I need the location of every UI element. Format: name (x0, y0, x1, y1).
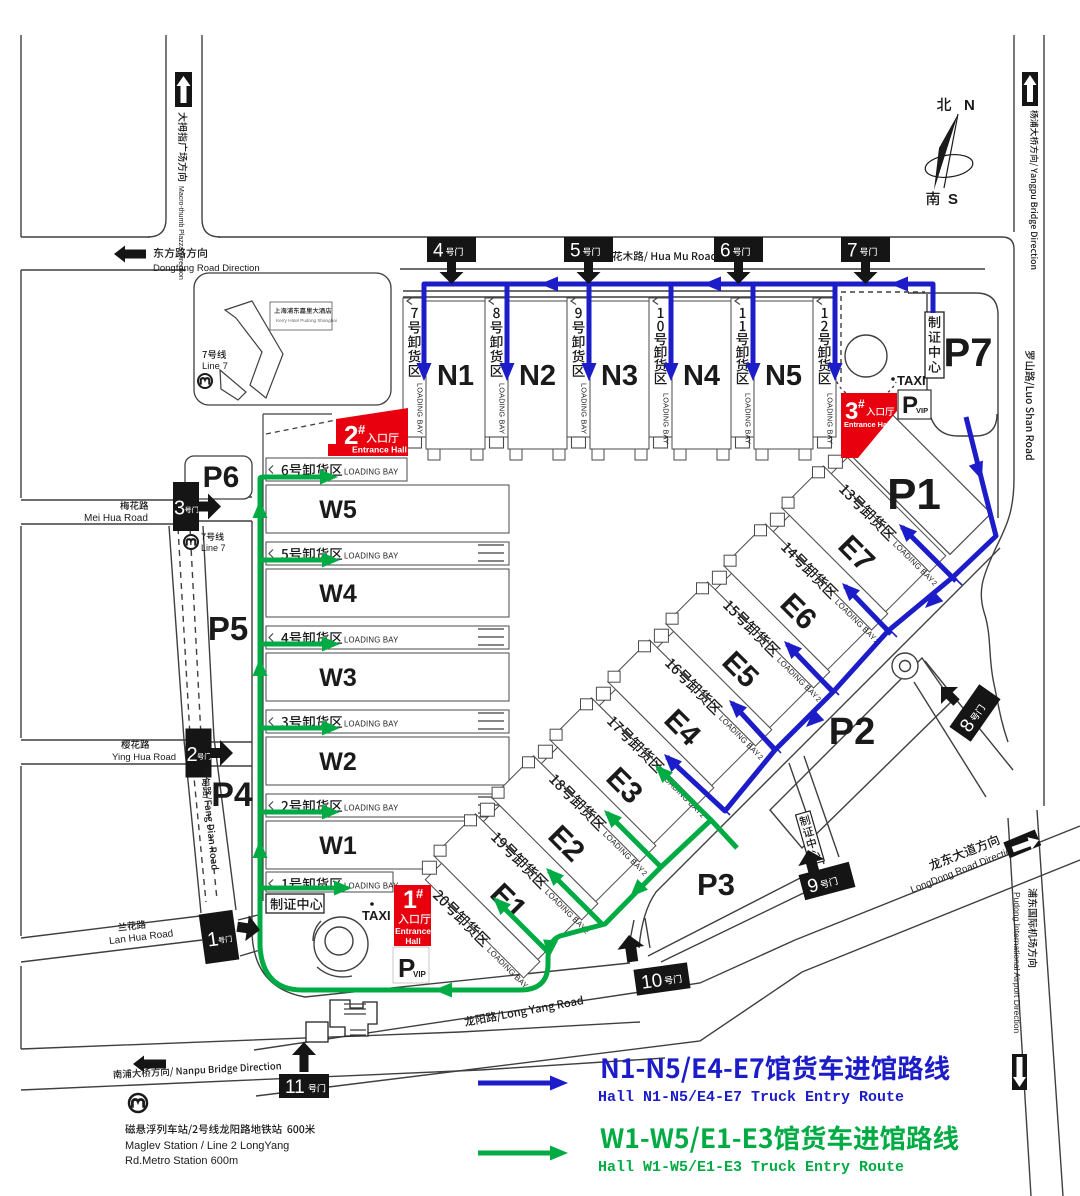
svg-text:W5: W5 (319, 496, 357, 524)
svg-text:P3: P3 (697, 867, 735, 902)
svg-text:10: 10 (640, 970, 664, 994)
svg-text:N2: N2 (519, 360, 556, 392)
svg-text:Entrance: Entrance (395, 926, 431, 936)
svg-text:P2: P2 (829, 711, 875, 753)
svg-text:W4: W4 (319, 580, 357, 608)
svg-text:LOADING BAY: LOADING BAY (416, 383, 425, 434)
svg-text:LOADING BAY: LOADING BAY (662, 393, 671, 444)
svg-text:4: 4 (433, 241, 444, 262)
svg-text:LOADING BAY: LOADING BAY (826, 393, 835, 444)
svg-text:Hall W1-W5/E1-E3 Truck Entry R: Hall W1-W5/E1-E3 Truck Entry Route (598, 1159, 904, 1176)
svg-text:N3: N3 (601, 360, 638, 392)
svg-text:LOADING BAY: LOADING BAY (344, 804, 399, 813)
svg-text:P4: P4 (211, 776, 253, 814)
svg-text:N4: N4 (683, 360, 720, 392)
svg-text:TAXI: TAXI (362, 908, 391, 923)
svg-text:LOADING BAY: LOADING BAY (344, 468, 399, 477)
svg-text:LOADING BAY: LOADING BAY (344, 552, 399, 561)
svg-text:6: 6 (720, 241, 731, 262)
svg-text:W1: W1 (319, 832, 357, 860)
svg-text:LOADING BAY: LOADING BAY (344, 882, 399, 891)
svg-text:S: S (948, 191, 958, 208)
svg-text:LOADING BAY: LOADING BAY (344, 636, 399, 645)
svg-text:11: 11 (285, 1077, 305, 1098)
svg-text:Rd.Metro Station 600m: Rd.Metro Station 600m (125, 1155, 238, 1167)
svg-text:Hall: Hall (405, 936, 420, 946)
svg-text:Pudong International Airport D: Pudong International Airport Direction (1012, 892, 1022, 1034)
svg-text:Dongfang Road Direction: Dongfang Road Direction (153, 263, 260, 274)
svg-text:5: 5 (570, 241, 581, 262)
svg-text:Line 7: Line 7 (202, 361, 228, 372)
svg-text:LOADING BAY: LOADING BAY (744, 393, 753, 444)
svg-text:7: 7 (847, 241, 858, 262)
svg-text:VIP: VIP (413, 970, 427, 979)
svg-text:P5: P5 (208, 610, 248, 647)
svg-text:#: # (858, 397, 865, 411)
svg-text:N: N (964, 97, 975, 114)
svg-text:LOADING BAY: LOADING BAY (344, 720, 399, 729)
svg-text:P6: P6 (203, 461, 240, 494)
svg-text:1: 1 (403, 886, 417, 914)
svg-text:TAXI: TAXI (897, 373, 926, 388)
svg-text:LOADING BAY: LOADING BAY (498, 383, 507, 434)
svg-text:LOADING BAY: LOADING BAY (580, 383, 589, 434)
svg-text:#: # (416, 886, 424, 901)
svg-text:2: 2 (187, 744, 198, 766)
svg-text:Macro-thumb Plazza Direction: Macro-thumb Plazza Direction (177, 186, 184, 280)
svg-text:P1: P1 (887, 470, 941, 519)
svg-text:W2: W2 (319, 748, 357, 776)
svg-text:3: 3 (174, 498, 185, 520)
svg-text:Maglev Station / Line 2 LongYa: Maglev Station / Line 2 LongYang (125, 1140, 289, 1152)
svg-text:N5: N5 (765, 360, 802, 392)
svg-text:Line 7: Line 7 (201, 543, 226, 553)
svg-text:Kerry Hotel Pudong Shanghai: Kerry Hotel Pudong Shanghai (276, 318, 337, 323)
svg-text:Ying Hua Road: Ying Hua Road (112, 752, 176, 763)
svg-text:W3: W3 (319, 664, 357, 692)
svg-text:Mei Hua Road: Mei Hua Road (84, 513, 148, 524)
svg-text:Hall N1-N5/E4-E7 Truck Entry R: Hall N1-N5/E4-E7 Truck Entry Route (598, 1089, 904, 1106)
svg-text:N1: N1 (437, 360, 474, 392)
svg-text:Entrance Hall: Entrance Hall (352, 445, 407, 455)
svg-text:Entrance Hall: Entrance Hall (844, 420, 891, 429)
svg-text:VIP: VIP (916, 406, 928, 415)
svg-text:#: # (358, 422, 366, 437)
svg-text:P7: P7 (944, 331, 993, 375)
